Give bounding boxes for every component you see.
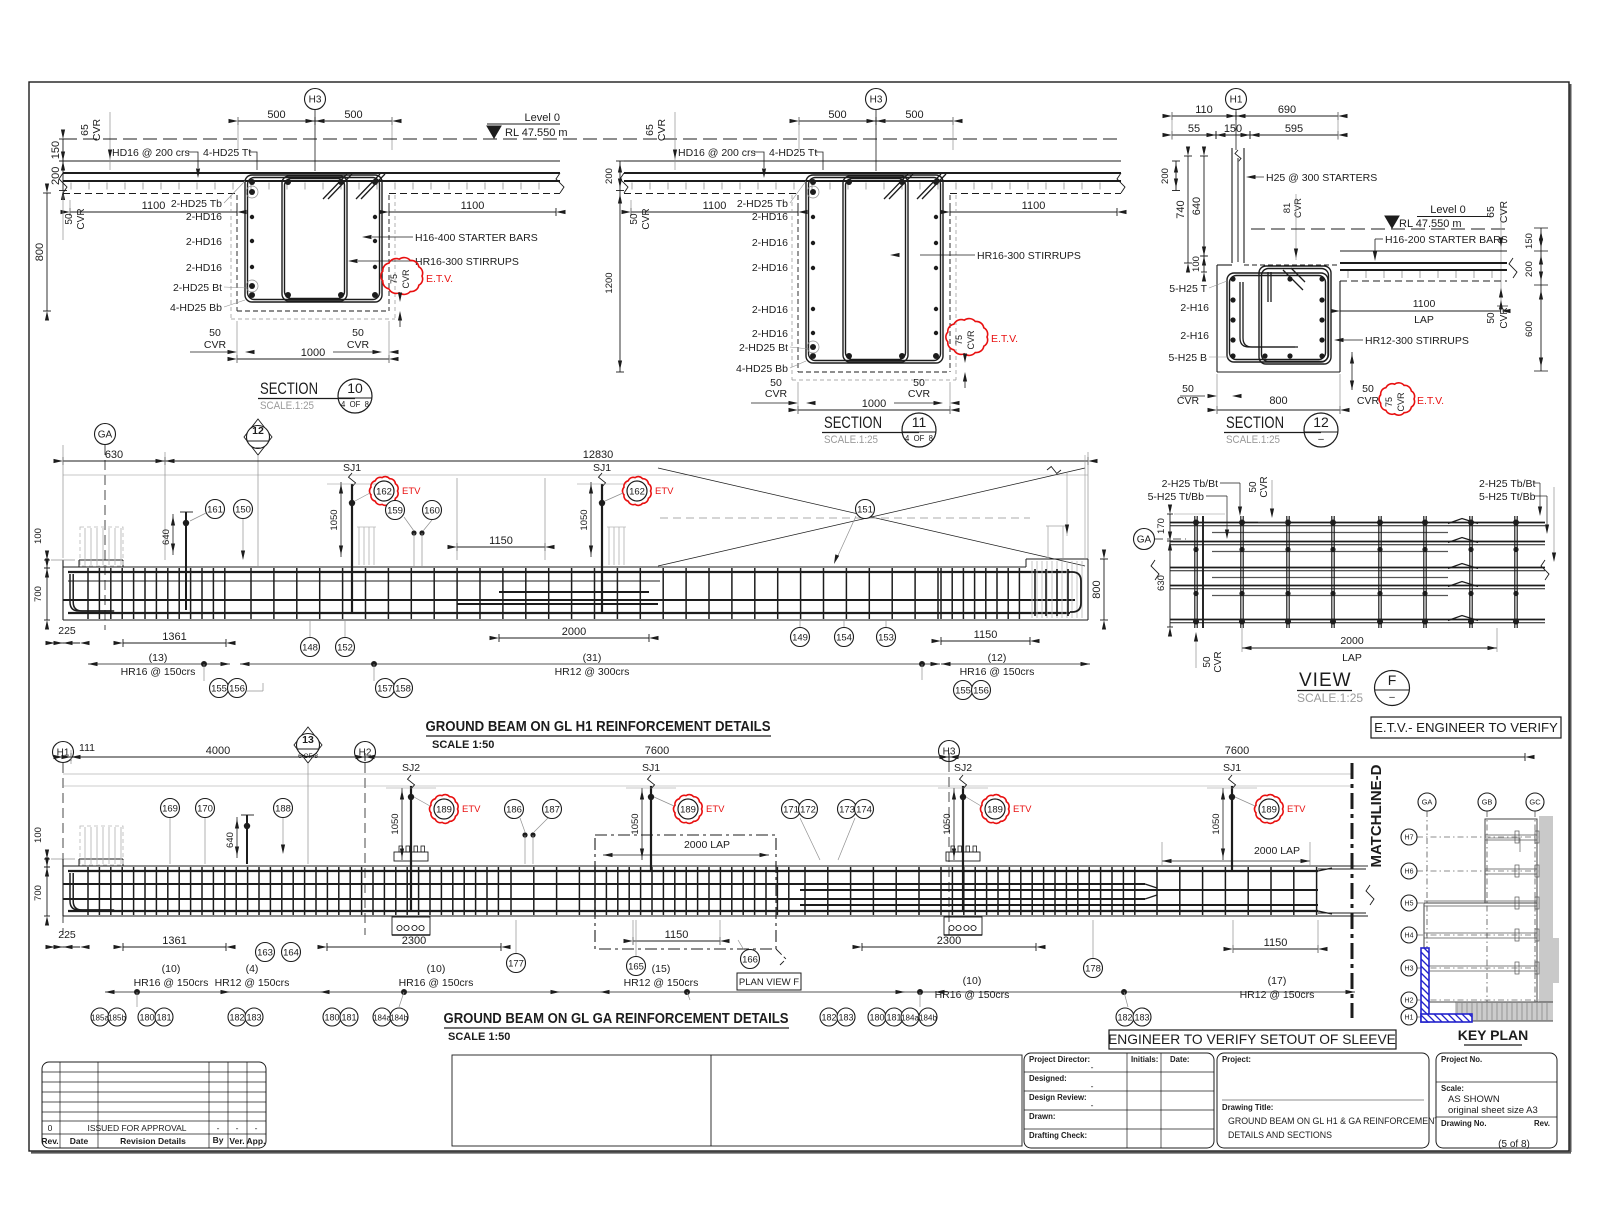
svg-text:CVR: CVR <box>204 339 227 351</box>
svg-text:50: 50 <box>64 213 75 225</box>
svg-text:2-HD16: 2-HD16 <box>186 211 222 223</box>
svg-text:Drawing No.: Drawing No. <box>1441 1119 1486 1128</box>
svg-text:200: 200 <box>1524 261 1535 277</box>
svg-text:4 OF 8: 4 OF 8 <box>341 400 370 409</box>
svg-text:ENGINEER TO VERIFY SETOUT OF S: ENGINEER TO VERIFY SETOUT OF SLEEVE <box>1108 1032 1396 1047</box>
svg-text:183: 183 <box>838 1012 853 1022</box>
svg-text:SECTION: SECTION <box>260 379 318 398</box>
svg-text:CVR: CVR <box>1357 395 1380 407</box>
svg-text:(17): (17) <box>1268 975 1287 987</box>
svg-text:ETV: ETV <box>462 804 481 815</box>
svg-text:161: 161 <box>207 504 223 515</box>
svg-text:1050: 1050 <box>390 813 401 834</box>
svg-text:183: 183 <box>1134 1012 1149 1022</box>
svg-text:SJ1: SJ1 <box>593 462 611 474</box>
svg-text:DETAILS AND SECTIONS: DETAILS AND SECTIONS <box>1228 1130 1332 1140</box>
svg-text:HR12 @ 150crs: HR12 @ 150crs <box>215 977 290 989</box>
svg-text:H7: H7 <box>1405 835 1414 842</box>
svg-text:CVR: CVR <box>1498 200 1510 223</box>
svg-text:75: 75 <box>954 335 964 345</box>
svg-text:Drawing Title:: Drawing Title: <box>1222 1103 1273 1112</box>
svg-text:11: 11 <box>912 414 927 430</box>
svg-text:MATCHLINE-D: MATCHLINE-D <box>1368 764 1385 867</box>
svg-text:690: 690 <box>1278 104 1296 116</box>
svg-text:155: 155 <box>955 685 971 696</box>
svg-text:Project No.: Project No. <box>1441 1055 1482 1064</box>
svg-text:2-HD16: 2-HD16 <box>186 262 222 274</box>
svg-text:HR16-300 STIRRUPS: HR16-300 STIRRUPS <box>415 256 519 268</box>
svg-text:157: 157 <box>377 683 393 694</box>
svg-text:50: 50 <box>352 327 364 339</box>
svg-text:2000 LAP: 2000 LAP <box>684 839 730 851</box>
svg-text:GC: GC <box>1529 798 1541 807</box>
svg-text:166: 166 <box>742 954 758 965</box>
svg-text:GROUND BEAM ON GL H1 REINFORCE: GROUND BEAM ON GL H1 REINFORCEMENT DETAI… <box>426 719 771 735</box>
svg-text:12: 12 <box>252 425 264 437</box>
svg-text:2-HD25 Bt: 2-HD25 Bt <box>173 282 222 294</box>
svg-text:H3: H3 <box>870 95 883 106</box>
svg-text:HR12 @ 150crs: HR12 @ 150crs <box>1240 989 1315 1001</box>
svg-text:180: 180 <box>139 1012 154 1022</box>
svg-text:151: 151 <box>857 504 873 515</box>
svg-text:65: 65 <box>644 124 656 136</box>
svg-text:CVR: CVR <box>908 388 931 400</box>
svg-text:SECTION: SECTION <box>1226 413 1284 432</box>
svg-text:154: 154 <box>836 632 852 643</box>
svg-text:189: 189 <box>436 804 452 815</box>
svg-text:700: 700 <box>33 586 44 602</box>
svg-text:12830: 12830 <box>583 449 614 461</box>
svg-text:500: 500 <box>344 109 362 121</box>
svg-text:H6: H6 <box>1405 869 1414 876</box>
svg-text:Drafting Check:: Drafting Check: <box>1029 1131 1087 1140</box>
svg-text:4-HD25 Tt: 4-HD25 Tt <box>769 147 817 159</box>
svg-text:Initials:: Initials: <box>1131 1055 1158 1064</box>
svg-text:150: 150 <box>1224 123 1242 135</box>
svg-text:225: 225 <box>58 625 76 637</box>
svg-text:-: - <box>1091 1062 1094 1072</box>
svg-text:174: 174 <box>856 804 872 815</box>
svg-text:ETV: ETV <box>655 486 674 497</box>
svg-text:ISSUED FOR APPROVAL: ISSUED FOR APPROVAL <box>87 1123 186 1133</box>
svg-text:ETV: ETV <box>706 804 725 815</box>
svg-text:Design Review:: Design Review: <box>1029 1093 1087 1102</box>
svg-text:HR16 @ 150crs: HR16 @ 150crs <box>134 977 209 989</box>
svg-text:PLAN VIEW F: PLAN VIEW F <box>739 977 799 988</box>
svg-text:SJ1: SJ1 <box>343 462 361 474</box>
svg-text:50: 50 <box>1362 383 1374 395</box>
svg-text:original sheet size A3: original sheet size A3 <box>1448 1105 1538 1116</box>
svg-text:630: 630 <box>1156 575 1167 591</box>
svg-text:182: 182 <box>1117 1012 1132 1022</box>
svg-text:E.T.V.: E.T.V. <box>426 273 453 285</box>
svg-text:156: 156 <box>229 683 245 694</box>
svg-text:1050: 1050 <box>1211 813 1222 834</box>
svg-text:2300: 2300 <box>402 935 426 947</box>
svg-text:100: 100 <box>1191 256 1202 272</box>
svg-text:12: 12 <box>1313 414 1329 430</box>
svg-text:2000: 2000 <box>1340 635 1364 647</box>
svg-text:50: 50 <box>1202 656 1213 668</box>
svg-text:CVR: CVR <box>401 269 411 289</box>
svg-text:(5 of 8): (5 of 8) <box>1498 1139 1530 1150</box>
svg-text:700: 700 <box>33 885 44 901</box>
svg-text:4 OF 8: 4 OF 8 <box>905 434 934 443</box>
svg-text:CVR: CVR <box>656 118 668 141</box>
svg-text:169: 169 <box>162 803 178 814</box>
svg-text:595: 595 <box>1285 123 1303 135</box>
svg-text:GB: GB <box>1482 798 1493 807</box>
svg-text:(15): (15) <box>652 963 671 975</box>
svg-text:65: 65 <box>1485 206 1497 218</box>
svg-text:156: 156 <box>973 685 989 696</box>
svg-text:GA: GA <box>1137 535 1152 546</box>
svg-text:H2: H2 <box>1405 998 1414 1005</box>
svg-text:H1: H1 <box>1405 1015 1414 1022</box>
svg-text:H5: H5 <box>1405 901 1414 908</box>
svg-text:1000: 1000 <box>862 398 886 410</box>
svg-text:148: 148 <box>302 642 318 653</box>
svg-text:170: 170 <box>197 803 213 814</box>
svg-text:182: 182 <box>821 1012 836 1022</box>
svg-text:SJ2: SJ2 <box>402 762 420 774</box>
svg-text:(10): (10) <box>427 963 446 975</box>
svg-text:150: 150 <box>235 504 251 515</box>
svg-text:111: 111 <box>79 742 95 754</box>
svg-text:H1: H1 <box>1230 95 1243 106</box>
svg-text:5-H25 B: 5-H25 B <box>1168 352 1207 364</box>
svg-text:6 OF 8: 6 OF 8 <box>298 753 318 760</box>
svg-text:181: 181 <box>886 1012 901 1022</box>
svg-text:LAP: LAP <box>1414 314 1434 326</box>
svg-text:110: 110 <box>1195 104 1213 116</box>
svg-text:160: 160 <box>424 505 440 516</box>
svg-text:2-HD16: 2-HD16 <box>186 236 222 248</box>
svg-text:165: 165 <box>628 961 644 972</box>
svg-text:E.T.V.: E.T.V. <box>1417 395 1444 407</box>
svg-text:ETV: ETV <box>1287 804 1306 815</box>
svg-text:171: 171 <box>783 804 799 815</box>
svg-text:180: 180 <box>869 1012 884 1022</box>
svg-text:(10): (10) <box>963 975 982 987</box>
svg-text:184a: 184a <box>901 1013 919 1022</box>
svg-text:500: 500 <box>267 109 285 121</box>
svg-text:Level 0: Level 0 <box>525 112 560 124</box>
svg-text:–: – <box>1389 692 1395 703</box>
svg-text:181: 181 <box>341 1012 356 1022</box>
svg-text:2000: 2000 <box>562 626 586 638</box>
svg-text:1050: 1050 <box>579 509 590 530</box>
svg-text:App.: App. <box>247 1136 266 1146</box>
svg-text:188: 188 <box>275 803 291 814</box>
svg-text:SJ1: SJ1 <box>642 762 660 774</box>
svg-text:200: 200 <box>604 168 615 184</box>
svg-text:Date: Date <box>70 1136 89 1146</box>
svg-text:2-HD16: 2-HD16 <box>752 237 788 249</box>
svg-text:5-H25 T: 5-H25 T <box>1169 283 1207 295</box>
svg-text:SCALE 1:50: SCALE 1:50 <box>448 1031 510 1043</box>
svg-text:162: 162 <box>629 486 645 497</box>
svg-text:1150: 1150 <box>974 629 998 641</box>
svg-text:800: 800 <box>34 243 46 261</box>
svg-text:182: 182 <box>229 1012 244 1022</box>
svg-text:50: 50 <box>209 327 221 339</box>
svg-text:184a: 184a <box>373 1013 391 1022</box>
svg-text:GROUND BEAM ON GL H1 & GA REIN: GROUND BEAM ON GL H1 & GA REINFORCEMENT <box>1228 1116 1440 1126</box>
svg-text:H25 @ 300 STARTERS: H25 @ 300 STARTERS <box>1266 172 1377 184</box>
svg-text:Project:: Project: <box>1222 1055 1251 1064</box>
svg-text:2-HD16: 2-HD16 <box>752 211 788 223</box>
svg-text:H3: H3 <box>1405 966 1414 973</box>
svg-text:13: 13 <box>302 734 314 746</box>
svg-text:149: 149 <box>792 632 808 643</box>
svg-text:1150: 1150 <box>665 929 689 941</box>
svg-text:163: 163 <box>257 947 273 958</box>
svg-text:-: - <box>255 1123 258 1133</box>
svg-text:55: 55 <box>1188 123 1200 135</box>
svg-text:H16-200 STARTER BARS: H16-200 STARTER BARS <box>1385 234 1508 246</box>
svg-text:1100: 1100 <box>703 200 727 212</box>
svg-text:-: - <box>1091 1081 1094 1091</box>
svg-text:177: 177 <box>508 958 524 969</box>
svg-text:183: 183 <box>246 1012 261 1022</box>
svg-text:–: – <box>256 443 261 452</box>
svg-text:2-HD25 Tb: 2-HD25 Tb <box>737 198 788 210</box>
svg-text:RL 47.550 m: RL 47.550 m <box>1399 218 1462 230</box>
svg-text:180: 180 <box>324 1012 339 1022</box>
svg-text:LAP: LAP <box>1342 652 1362 664</box>
svg-text:HR16 @ 150crs: HR16 @ 150crs <box>399 977 474 989</box>
svg-text:1100: 1100 <box>461 200 485 212</box>
svg-text:75: 75 <box>389 274 399 284</box>
svg-text:CVR: CVR <box>76 208 87 229</box>
svg-text:158: 158 <box>395 683 411 694</box>
svg-text:2-HD16: 2-HD16 <box>752 304 788 316</box>
svg-text:(31): (31) <box>583 652 602 664</box>
svg-text:CVR: CVR <box>1177 395 1200 407</box>
svg-text:1050: 1050 <box>329 509 340 530</box>
svg-text:159: 159 <box>387 505 403 516</box>
svg-text:4-HD25 Bb: 4-HD25 Bb <box>170 302 222 314</box>
svg-text:E.T.V.: E.T.V. <box>991 333 1018 345</box>
svg-text:1200: 1200 <box>604 272 615 293</box>
svg-text:184b: 184b <box>919 1013 937 1022</box>
svg-text:184b: 184b <box>390 1013 408 1022</box>
svg-text:CVR: CVR <box>1259 476 1270 497</box>
svg-text:SCALE.1:25: SCALE.1:25 <box>260 400 314 412</box>
svg-text:ETV: ETV <box>1013 804 1032 815</box>
svg-text:155: 155 <box>211 683 227 694</box>
svg-text:E.T.V.- ENGINEER TO VERIFY: E.T.V.- ENGINEER TO VERIFY <box>1374 720 1558 735</box>
svg-text:150: 150 <box>50 141 62 159</box>
svg-text:CVR: CVR <box>91 118 103 141</box>
svg-text:189: 189 <box>1261 804 1277 815</box>
svg-text:75: 75 <box>1384 397 1394 407</box>
svg-text:Scale:: Scale: <box>1441 1084 1464 1093</box>
svg-text:SCALE.1:25: SCALE.1:25 <box>824 434 878 446</box>
svg-text:10: 10 <box>347 380 363 396</box>
svg-text:1150: 1150 <box>1264 937 1288 949</box>
svg-text:2-HD25 Bt: 2-HD25 Bt <box>739 342 788 354</box>
svg-text:-: - <box>217 1123 220 1133</box>
svg-text:HR16 @ 150crs: HR16 @ 150crs <box>960 666 1035 678</box>
svg-text:GA: GA <box>1422 798 1433 807</box>
svg-text:SECTION: SECTION <box>824 413 882 432</box>
svg-text:630: 630 <box>105 449 123 461</box>
svg-text:HR16-300 STIRRUPS: HR16-300 STIRRUPS <box>977 250 1081 262</box>
svg-text:178: 178 <box>1085 963 1101 974</box>
svg-text:1100: 1100 <box>1022 200 1046 212</box>
svg-text:800: 800 <box>1091 580 1103 598</box>
svg-text:50: 50 <box>629 213 640 225</box>
svg-text:152: 152 <box>337 642 353 653</box>
svg-text:740: 740 <box>1175 200 1187 218</box>
svg-text:185a: 185a <box>91 1013 109 1022</box>
svg-text:172: 172 <box>800 804 816 815</box>
svg-text:500: 500 <box>828 109 846 121</box>
svg-text:600: 600 <box>1524 321 1535 337</box>
svg-text:640: 640 <box>161 529 172 545</box>
svg-text:189: 189 <box>680 804 696 815</box>
svg-text:640: 640 <box>1191 197 1203 215</box>
svg-text:CVR: CVR <box>1396 392 1406 412</box>
svg-text:50: 50 <box>1182 383 1194 395</box>
svg-text:-: - <box>1091 1100 1094 1110</box>
svg-text:CVR: CVR <box>641 208 652 229</box>
svg-text:Rev.: Rev. <box>41 1136 58 1146</box>
svg-text:0: 0 <box>48 1123 53 1133</box>
svg-text:7600: 7600 <box>645 745 669 757</box>
svg-text:H4: H4 <box>1405 933 1414 940</box>
svg-text:ETV: ETV <box>402 486 421 497</box>
svg-text:2-HD16: 2-HD16 <box>752 328 788 340</box>
svg-text:Revision Details: Revision Details <box>120 1136 186 1146</box>
svg-text:4000: 4000 <box>206 745 230 757</box>
svg-text:200: 200 <box>1160 168 1171 184</box>
svg-text:800: 800 <box>1269 395 1287 407</box>
svg-text:65: 65 <box>79 124 91 136</box>
svg-text:162: 162 <box>376 486 392 497</box>
svg-text:CVR: CVR <box>1213 651 1224 672</box>
svg-text:170: 170 <box>1156 518 1167 534</box>
svg-text:(4): (4) <box>246 963 259 975</box>
svg-text:–: – <box>1318 434 1324 445</box>
svg-text:H16-400 STARTER BARS: H16-400 STARTER BARS <box>415 232 538 244</box>
svg-text:5-H25 Tt/Bb: 5-H25 Tt/Bb <box>1479 491 1536 503</box>
svg-text:2-H16: 2-H16 <box>1180 330 1209 342</box>
svg-text:F: F <box>1388 672 1397 688</box>
svg-text:Level 0: Level 0 <box>1430 204 1465 216</box>
svg-text:1050: 1050 <box>942 813 953 834</box>
svg-text:200: 200 <box>50 167 62 185</box>
svg-text:HR12-300 STIRRUPS: HR12-300 STIRRUPS <box>1365 335 1469 347</box>
svg-text:1361: 1361 <box>162 631 186 643</box>
svg-text:Ver.: Ver. <box>229 1136 244 1146</box>
svg-text:SCALE.1:25: SCALE.1:25 <box>1297 691 1363 705</box>
svg-text:AS SHOWN: AS SHOWN <box>1448 1094 1500 1105</box>
svg-text:CVR: CVR <box>347 339 370 351</box>
svg-text:2300: 2300 <box>937 935 961 947</box>
svg-text:HD16 @ 200 crs: HD16 @ 200 crs <box>112 147 190 159</box>
svg-text:640: 640 <box>225 832 236 848</box>
svg-text:SJ1: SJ1 <box>1223 762 1241 774</box>
svg-text:GROUND BEAM ON GL GA REINFORCE: GROUND BEAM ON GL GA REINFORCEMENT DETAI… <box>444 1011 789 1027</box>
svg-text:50: 50 <box>1248 481 1259 493</box>
svg-text:81: 81 <box>1282 203 1293 214</box>
svg-text:SJ2: SJ2 <box>954 762 972 774</box>
svg-text:2-H25 Tb/Bt: 2-H25 Tb/Bt <box>1162 478 1218 490</box>
svg-text:CVR: CVR <box>765 388 788 400</box>
svg-text:50: 50 <box>1486 312 1497 324</box>
svg-text:-: - <box>236 1123 239 1133</box>
svg-text:Designed:: Designed: <box>1029 1074 1067 1083</box>
svg-text:1050: 1050 <box>630 813 641 834</box>
svg-text:100: 100 <box>33 528 44 544</box>
svg-text:By: By <box>213 1135 224 1145</box>
svg-text:1150: 1150 <box>489 535 513 547</box>
svg-text:2-H25 Tb/Bt: 2-H25 Tb/Bt <box>1479 478 1535 490</box>
svg-text:186: 186 <box>506 804 522 815</box>
svg-text:(10): (10) <box>162 963 181 975</box>
svg-text:CVR: CVR <box>1293 198 1304 218</box>
svg-text:2-HD25 Tb: 2-HD25 Tb <box>171 198 222 210</box>
svg-text:185b: 185b <box>108 1013 126 1022</box>
svg-text:4-HD25 Tt: 4-HD25 Tt <box>203 147 251 159</box>
svg-text:2-HD16: 2-HD16 <box>752 262 788 274</box>
svg-text:181: 181 <box>156 1012 171 1022</box>
svg-text:500: 500 <box>905 109 923 121</box>
svg-text:1100: 1100 <box>142 200 166 212</box>
svg-text:SCALE 1:50: SCALE 1:50 <box>432 739 494 751</box>
svg-text:173: 173 <box>839 804 855 815</box>
svg-text:2-H16: 2-H16 <box>1180 302 1209 314</box>
svg-text:5-H25 Tt/Bb: 5-H25 Tt/Bb <box>1148 491 1205 503</box>
svg-text:187: 187 <box>544 804 560 815</box>
svg-text:VIEW: VIEW <box>1299 670 1352 691</box>
svg-text:GA: GA <box>98 430 113 441</box>
svg-text:SCALE.1:25: SCALE.1:25 <box>1226 434 1280 446</box>
svg-text:164: 164 <box>283 947 299 958</box>
svg-text:153: 153 <box>878 632 894 643</box>
svg-text:1361: 1361 <box>162 935 186 947</box>
svg-text:Drawn:: Drawn: <box>1029 1112 1055 1121</box>
svg-text:HR16 @ 150crs: HR16 @ 150crs <box>935 989 1010 1001</box>
svg-text:Rev.: Rev. <box>1534 1119 1550 1128</box>
svg-text:HR12 @ 150crs: HR12 @ 150crs <box>624 977 699 989</box>
svg-text:CVR: CVR <box>966 330 976 350</box>
svg-text:2000 LAP: 2000 LAP <box>1254 845 1300 857</box>
svg-text:(12): (12) <box>988 652 1007 664</box>
svg-text:Date:: Date: <box>1170 1055 1190 1064</box>
svg-text:7600: 7600 <box>1225 745 1249 757</box>
svg-text:4-HD25 Bb: 4-HD25 Bb <box>736 363 788 375</box>
svg-text:HD16 @ 200 crs: HD16 @ 200 crs <box>678 147 756 159</box>
svg-text:HR12 @ 300crs: HR12 @ 300crs <box>555 666 630 678</box>
svg-text:100: 100 <box>33 827 44 843</box>
svg-text:KEY PLAN: KEY PLAN <box>1458 1027 1529 1043</box>
svg-text:150: 150 <box>1524 233 1535 249</box>
svg-text:189: 189 <box>987 804 1003 815</box>
svg-text:(13): (13) <box>149 652 168 664</box>
svg-text:Project Director:: Project Director: <box>1029 1055 1090 1064</box>
svg-text:HR16 @ 150crs: HR16 @ 150crs <box>121 666 196 678</box>
svg-text:RL 47.550 m: RL 47.550 m <box>505 127 568 139</box>
svg-text:H3: H3 <box>309 95 322 106</box>
svg-text:1000: 1000 <box>301 347 325 359</box>
svg-text:1100: 1100 <box>1413 298 1436 310</box>
svg-text:225: 225 <box>58 929 76 941</box>
